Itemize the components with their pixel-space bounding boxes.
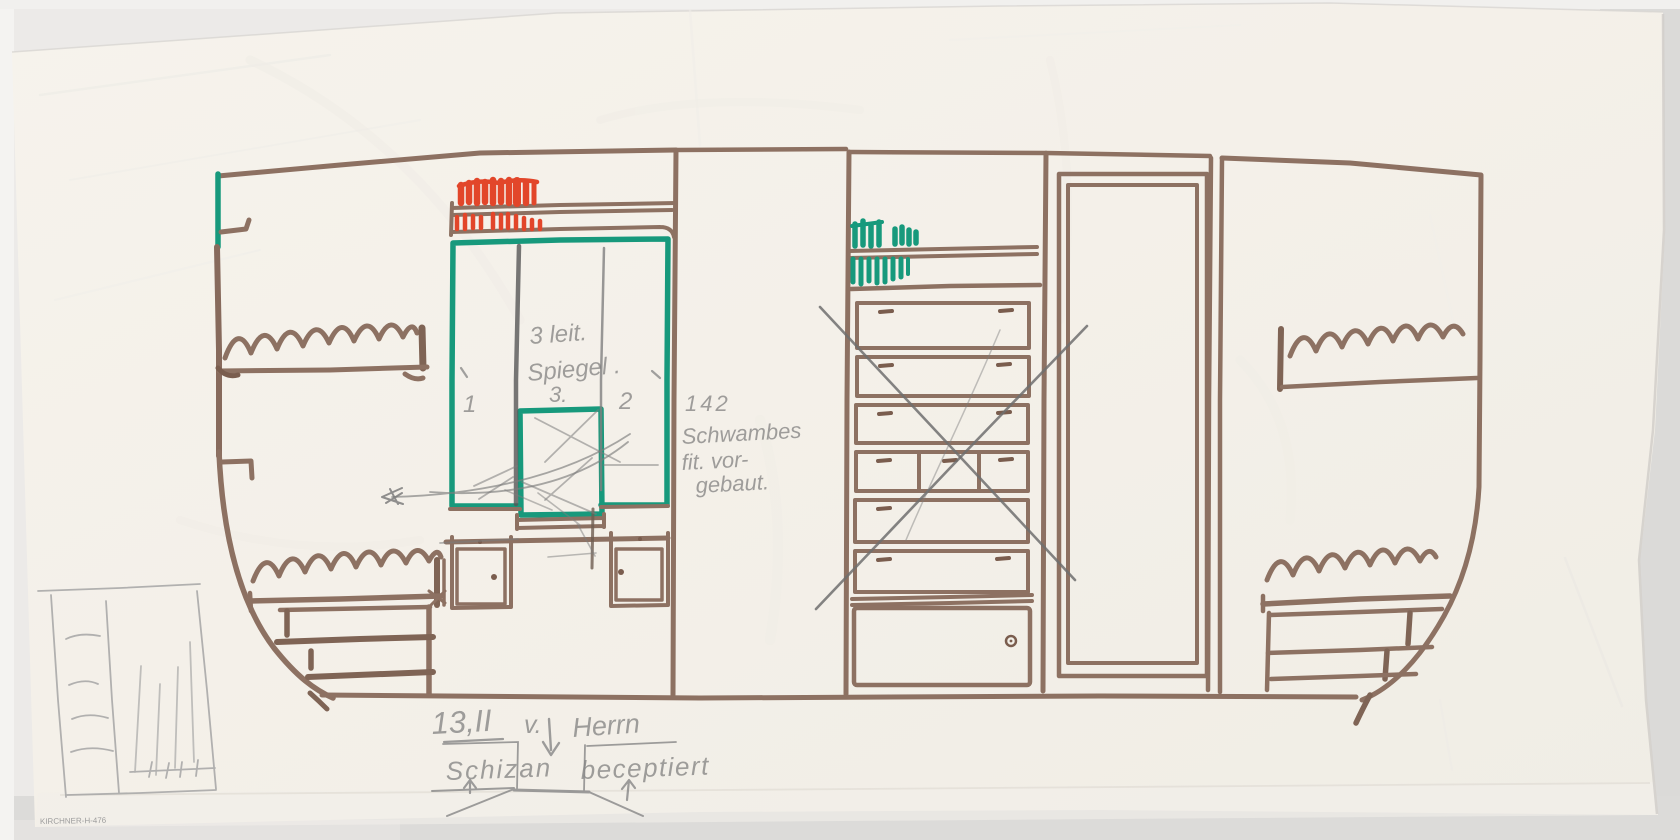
svg-text:3.: 3. [549, 382, 567, 407]
svg-text:2: 2 [618, 388, 632, 415]
svg-text:13,II: 13,II [431, 703, 493, 741]
svg-text:3 leit.: 3 leit. [529, 319, 588, 350]
svg-text:1: 1 [463, 391, 476, 418]
svg-text:Herrn: Herrn [571, 708, 640, 743]
svg-text:v.: v. [524, 711, 542, 739]
svg-text:KIRCHNER-H-476: KIRCHNER-H-476 [40, 816, 107, 826]
svg-text:Schizan: Schizan [445, 752, 552, 786]
svg-text:beceptiert: beceptiert [580, 750, 710, 784]
svg-text:142: 142 [685, 391, 731, 416]
svg-text:gebaut.: gebaut. [695, 469, 770, 498]
